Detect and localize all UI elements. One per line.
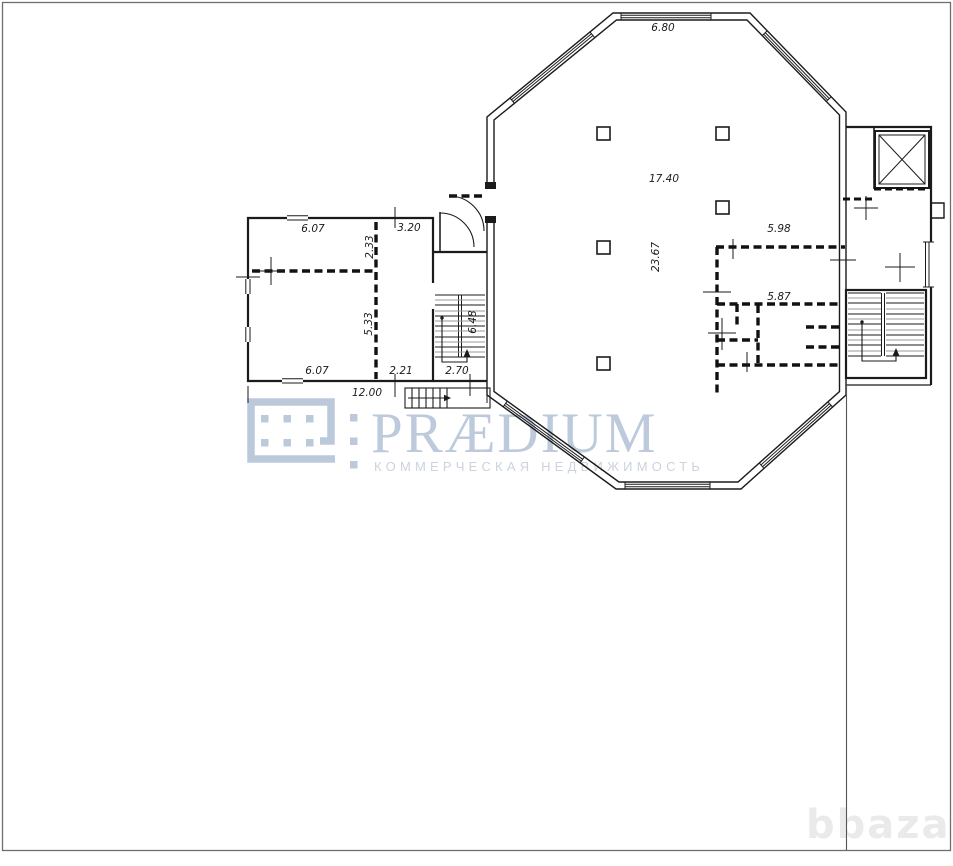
watermark-tagline-text: КОММЕРЧЕСКАЯ НЕДВИЖИМОСТЬ	[374, 459, 704, 474]
dim-right-inner-room-width: 5.87	[767, 291, 791, 303]
dim-annex-top-room-width: 6.07	[301, 223, 325, 235]
floor-plan-drawing: PRÆDIUM КОММЕРЧЕСКАЯ НЕДВИЖИМОСТЬ bbaza	[0, 0, 953, 866]
dim-right-room-width: 5.98	[767, 223, 791, 235]
dim-stair-bay-depth: 6.48	[467, 310, 479, 334]
dim-annex-bottom-room-depth: 5.33	[363, 312, 375, 335]
floor-plan-page: PRÆDIUM КОММЕРЧЕСКАЯ НЕДВИЖИМОСТЬ bbaza	[0, 0, 953, 866]
dim-hall-length: 23.67	[650, 242, 662, 272]
dim-stair-bay-width: 2.70	[445, 365, 469, 377]
portal-watermark-text: bbaza	[806, 802, 951, 848]
dim-annex-top-corridor: 3.20	[397, 222, 421, 234]
dim-annex-bottom-corridor: 2.21	[389, 365, 412, 377]
dim-annex-bottom-room-width: 6.07	[305, 365, 329, 377]
dim-annex-top-room-depth: 2.33	[364, 235, 376, 258]
dim-annex-total-width: 12.00	[352, 387, 382, 399]
dim-hall-width: 17.40	[649, 173, 679, 185]
hall-door-opening	[485, 182, 496, 223]
watermark-brand-text: PRÆDIUM	[371, 402, 657, 465]
dim-hall-top-width: 6.80	[651, 22, 675, 34]
